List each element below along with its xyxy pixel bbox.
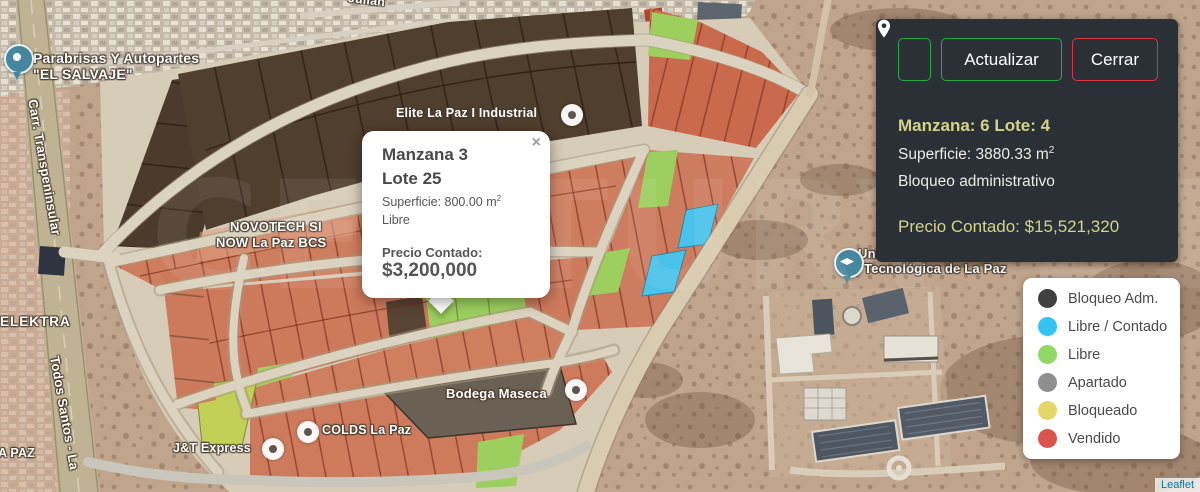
map-viewport[interactable]: Julián Parabrisas Y Autopartes "EL SALVA…	[0, 0, 1200, 492]
panel-price: Precio Contado: $15,521,320	[898, 217, 1158, 237]
popup-close-icon[interactable]: ×	[532, 136, 541, 150]
legend-label: Bloqueado	[1068, 403, 1137, 419]
university-pin	[834, 248, 864, 278]
panel-status: Bloqueo administrativo	[898, 173, 1158, 191]
popup-superficie: Superficie: 800.00 m2	[382, 193, 540, 211]
legend-row: Vendido	[1038, 429, 1168, 448]
status-legend: Bloqueo Adm. Libre / Contado Libre Apart…	[1023, 278, 1180, 459]
poi-marker-colds	[297, 421, 319, 443]
legend-swatch-bloqueado	[1038, 401, 1057, 420]
locate-button[interactable]	[898, 38, 931, 81]
legend-label: Libre / Contado	[1068, 319, 1167, 335]
campus-building	[804, 388, 846, 420]
campus-building	[812, 299, 834, 336]
popup-price-label: Precio Contado:	[382, 245, 540, 260]
update-button[interactable]: Actualizar	[941, 38, 1062, 81]
panel-superficie: Superficie: 3880.33 m2	[898, 145, 1158, 164]
close-button[interactable]: Cerrar	[1072, 38, 1158, 81]
lot-popup: × Manzana 3 Lote 25 Superficie: 800.00 m…	[362, 131, 550, 298]
campus-round-building	[843, 307, 861, 325]
poi-marker-elite	[561, 104, 583, 126]
popup-price-value: $3,200,000	[382, 260, 540, 282]
legend-swatch-libre-contado	[1038, 317, 1057, 336]
legend-swatch-apartado	[1038, 373, 1057, 392]
poi-marker-bodega	[565, 379, 587, 401]
legend-label: Vendido	[1068, 431, 1120, 447]
legend-label: Libre	[1068, 347, 1100, 363]
popup-status: Libre	[382, 211, 540, 229]
legend-row: Apartado	[1038, 373, 1168, 392]
legend-row: Bloqueado	[1038, 401, 1168, 420]
legend-row: Libre	[1038, 345, 1168, 364]
leaflet-link[interactable]: Leaflet	[1161, 479, 1194, 491]
lot-info-panel: Actualizar Cerrar Manzana: 6 Lote: 4 Sup…	[876, 19, 1178, 262]
legend-swatch-libre	[1038, 345, 1057, 364]
legend-row: Bloqueo Adm.	[1038, 289, 1168, 308]
legend-swatch-vendido	[1038, 429, 1057, 448]
poi-marker-jt	[262, 438, 284, 460]
map-attribution: Leaflet	[1155, 478, 1200, 492]
legend-swatch-bloqueo-adm	[1038, 289, 1057, 308]
legend-label: Bloqueo Adm.	[1068, 291, 1158, 307]
panel-title: Manzana: 6 Lote: 4	[898, 116, 1158, 136]
popup-manzana: Manzana 3	[382, 145, 540, 165]
popup-lote: Lote 25	[382, 169, 540, 189]
map-pin-icon	[876, 19, 892, 39]
store-pin-parabrisas	[4, 44, 34, 74]
legend-label: Apartado	[1068, 375, 1127, 391]
graduation-cap-icon	[840, 258, 854, 265]
legend-row: Libre / Contado	[1038, 317, 1168, 336]
